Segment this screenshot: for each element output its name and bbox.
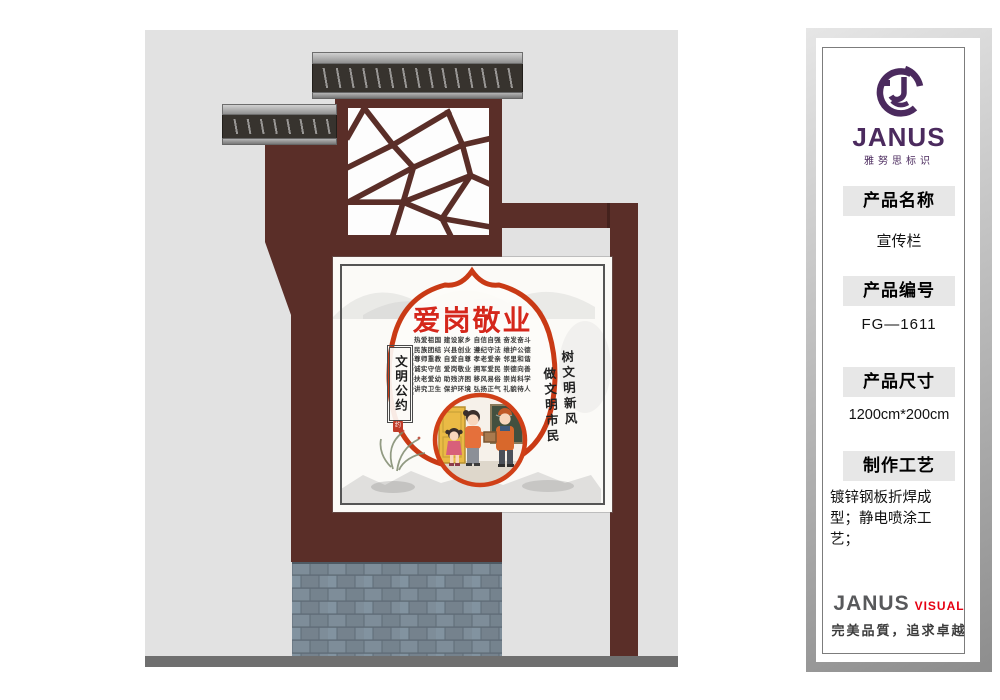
lattice-window xyxy=(335,97,502,247)
main-roof-cap xyxy=(312,52,523,64)
poster-title: 爱岗敬业 xyxy=(333,299,612,339)
right-column xyxy=(610,228,638,657)
poster-row: 热爱祖国 建设家乡 自信自强 奋发奋斗 xyxy=(333,336,612,346)
red-seal: 约 xyxy=(393,421,403,432)
main-roof-tiles xyxy=(312,64,523,92)
field-label-product-size: 产品尺寸 xyxy=(843,367,955,397)
brand-wordmark: JANUS xyxy=(806,122,992,153)
product-spec-sheet: 爱岗敬业 热爱祖国 建设家乡 自信自强 奋发奋斗 民族团结 兴县创业 遵纪守法 … xyxy=(0,0,1000,700)
brand-subtitle: 雅努思标识 xyxy=(806,152,992,167)
field-label-product-code: 产品编号 xyxy=(843,276,955,306)
brick-base xyxy=(292,562,502,657)
janus-logo-mark xyxy=(870,64,928,120)
field-value-product-code: FG—1611 xyxy=(806,316,992,333)
civility-pact-plaque: 文明公约 xyxy=(389,347,411,421)
plaque-micro-marks xyxy=(413,353,414,395)
footer-brand-janus: JANUS xyxy=(833,592,909,615)
field-value-product-name: 宣传栏 xyxy=(806,230,992,251)
field-label-process: 制作工艺 xyxy=(843,451,955,481)
side-roof-cap xyxy=(222,104,337,115)
poster: 爱岗敬业 热爱祖国 建设家乡 自信自强 奋发奋斗 民族团结 兴县创业 遵纪守法 … xyxy=(333,257,612,512)
field-value-process: 镀锌钢板折焊成型；静电喷涂工艺； xyxy=(830,488,942,551)
footer-brand: JANUSVISUAL xyxy=(806,592,992,616)
main-roof-lip xyxy=(312,92,523,99)
right-beam xyxy=(500,203,638,228)
side-roof-lip xyxy=(222,138,337,145)
calligraphy-column-left: 做文明市民 xyxy=(539,367,562,445)
spec-panel: JANUS 雅努思标识 产品名称 宣传栏 产品编号 FG—1611 产品尺寸 1… xyxy=(806,28,992,672)
side-roof-tiles xyxy=(222,115,337,138)
lattice-panel xyxy=(348,108,489,235)
beam-seam xyxy=(607,203,610,228)
ice-crack-pattern xyxy=(348,108,489,235)
roof-tile-ridges xyxy=(317,68,518,88)
field-label-product-name: 产品名称 xyxy=(843,186,955,216)
field-value-product-size: 1200cm*200cm xyxy=(806,407,992,423)
footer-brand-visual: VISUAL xyxy=(915,599,965,613)
roof-tile-ridges xyxy=(227,119,332,134)
ground-strip xyxy=(145,656,678,667)
footer-slogan: 完美品質，追求卓越 xyxy=(806,620,992,639)
